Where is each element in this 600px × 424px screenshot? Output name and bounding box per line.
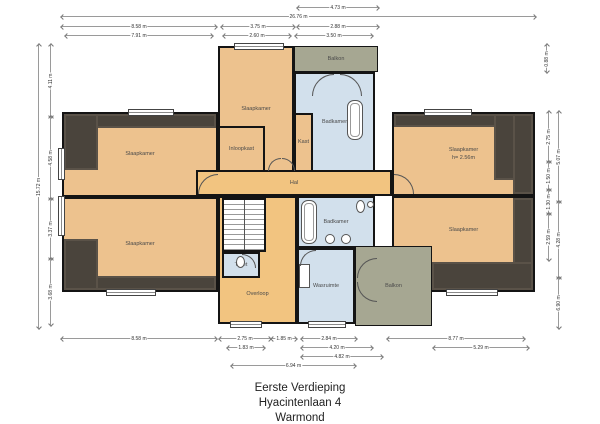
title-address: Hyacintenlaan 4	[0, 396, 600, 411]
room-label: Slaapkamer	[125, 240, 154, 248]
dimension: 3.68 m	[50, 259, 51, 325]
dimension-label: 1.83 m	[237, 345, 254, 351]
dimension: 8.77 m	[388, 338, 524, 339]
dimension: 8.58 m	[62, 26, 216, 27]
dimension-label: 4.20 m	[328, 345, 345, 351]
dimension-label: 0.88 m	[544, 50, 550, 67]
dimension: 7.91 m	[66, 35, 212, 36]
room-label: Slaapkamer	[125, 150, 154, 158]
room-label: Slaapkamer h= 2.56m	[449, 146, 478, 163]
title-floor: Eerste Verdieping	[0, 381, 600, 396]
dimension: 6.90 m	[558, 278, 559, 328]
dimension-label: 2.60 m	[248, 33, 265, 39]
dimension-label: 2.88 m	[329, 24, 346, 30]
dimension-label: 26.76 m	[288, 14, 308, 20]
dimension-label: 3.37 m	[48, 220, 54, 237]
dimension: 2.75 m	[220, 338, 270, 339]
dimension-label: 2.59 m	[546, 228, 552, 245]
window	[308, 321, 346, 328]
dimension: 2.75 m	[548, 112, 549, 162]
dimension: 6.94 m	[232, 365, 355, 366]
dimension-label: 4.73 m	[329, 5, 346, 11]
dimension: 15.72 m	[38, 45, 39, 328]
dimension-label: 4.58 m	[48, 149, 54, 166]
dimension-label: 5.29 m	[472, 345, 489, 351]
window	[446, 289, 498, 296]
room-label: Slaapkamer	[449, 226, 478, 234]
dimension: 3.75 m	[222, 26, 294, 27]
dimension: 4.73 m	[298, 7, 378, 8]
dimension: 4.28 m	[558, 202, 559, 278]
dimension-label: 3.50 m	[325, 33, 342, 39]
counter	[299, 264, 310, 288]
dimension: 4.11 m	[50, 45, 51, 117]
window	[234, 43, 284, 50]
window	[58, 148, 65, 180]
dimension-label: 8.58 m	[130, 24, 147, 30]
dimension: 5.07 m	[558, 112, 559, 202]
dimension: 1.85 m	[272, 338, 296, 339]
dimension: 4.82 m	[302, 356, 382, 357]
dimension-label: 2.84 m	[320, 336, 337, 342]
dimension: 26.76 m	[62, 16, 535, 17]
dimension-label: 8.77 m	[447, 336, 464, 342]
room-label: Badkamer	[322, 118, 347, 126]
dimension-label: 1.50 m	[546, 167, 552, 184]
window	[106, 289, 156, 296]
room-label: Overloop	[246, 290, 268, 298]
dimension-label: 15.72 m	[36, 176, 42, 196]
dimension-label: 5.07 m	[556, 148, 562, 165]
dimension: 2.88 m	[298, 26, 378, 27]
dimension: 1.30 m	[548, 190, 549, 214]
room-label: Inloopkast	[229, 145, 254, 153]
bathtub	[347, 100, 363, 140]
dimension-label: 2.75 m	[236, 336, 253, 342]
dimension-label: 4.28 m	[556, 231, 562, 248]
toilet-fixture	[356, 200, 365, 213]
dimension-label: 6.94 m	[285, 363, 302, 369]
bathtub	[301, 200, 317, 244]
dimension: 2.59 m	[548, 214, 549, 260]
dimension-label: 3.75 m	[249, 24, 266, 30]
window	[230, 321, 262, 328]
room-label: Kast	[298, 138, 309, 146]
sink	[367, 201, 374, 208]
dimension: 3.50 m	[296, 35, 372, 36]
dimension-label: 8.58 m	[130, 336, 147, 342]
title-city: Warmond	[0, 411, 600, 424]
dimension-label: 4.11 m	[48, 73, 54, 90]
room-label: Hal	[290, 179, 298, 187]
dimension: 4.58 m	[50, 117, 51, 199]
window	[128, 109, 174, 116]
dimension: 1.50 m	[548, 162, 549, 190]
dimension: 8.58 m	[62, 338, 216, 339]
dimension: 3.37 m	[50, 199, 51, 259]
dimension-label: 4.82 m	[333, 354, 350, 360]
dimension-label: 2.75 m	[546, 128, 552, 145]
dimension-label: 1.85 m	[275, 336, 292, 342]
room-label: Slaapkamer	[241, 105, 270, 113]
dimension-lines: 4.73 m26.76 m8.58 m3.75 m2.88 m7.91 m2.6…	[0, 0, 600, 424]
dimension: 2.60 m	[224, 35, 290, 36]
dimension: 0.88 m	[546, 45, 547, 72]
dimension: 5.29 m	[434, 347, 528, 348]
dimension: 2.84 m	[302, 338, 356, 339]
dimension-label: 7.91 m	[130, 33, 147, 39]
staircase	[222, 198, 266, 252]
dimension: 4.20 m	[302, 347, 372, 348]
dimension-label: 6.90 m	[556, 294, 562, 311]
sink	[325, 234, 335, 244]
dimension: 1.83 m	[228, 347, 264, 348]
room-label: Wasruimte	[313, 282, 339, 290]
room-label: Badkamer	[323, 218, 348, 226]
room-label: Balkon	[328, 55, 345, 63]
plan-title: Eerste Verdieping Hyacintenlaan 4 Warmon…	[0, 381, 600, 424]
floor-plan: 4.73 m26.76 m8.58 m3.75 m2.88 m7.91 m2.6…	[0, 0, 600, 424]
room-label: Balkon	[385, 282, 402, 290]
dimension-label: 3.68 m	[48, 283, 54, 300]
dimension-label: 1.30 m	[546, 193, 552, 210]
window	[424, 109, 472, 116]
window	[58, 196, 65, 236]
sink	[341, 234, 351, 244]
